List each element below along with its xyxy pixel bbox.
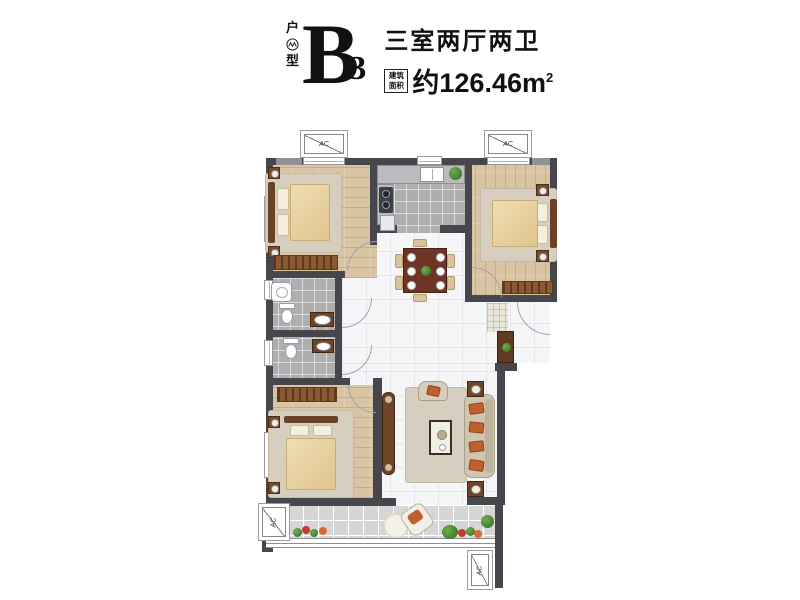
lamp-icon xyxy=(271,170,279,178)
bedroom3-nightstand xyxy=(268,482,280,494)
kitchen-fridge xyxy=(380,215,395,231)
dining-table xyxy=(403,248,447,293)
flower-icon xyxy=(302,526,310,534)
bed-pillow xyxy=(277,214,289,236)
cushion-icon xyxy=(407,509,424,526)
area-unit: m xyxy=(522,68,546,98)
dining-chair xyxy=(413,294,427,302)
flower-icon xyxy=(474,530,482,538)
dining-chair xyxy=(413,239,427,247)
dining-chair xyxy=(447,254,455,268)
bed-duvet xyxy=(290,184,330,241)
wall-bathroom-divider xyxy=(266,330,342,337)
bed-pillow xyxy=(537,203,548,222)
unit-type-label: 户 型 xyxy=(286,21,299,69)
window-kitchen xyxy=(417,156,442,165)
area-prefix: 约 xyxy=(412,68,439,98)
cushion-icon xyxy=(468,459,484,472)
bed-headboard xyxy=(284,416,338,423)
lamp-icon xyxy=(271,419,279,427)
ac-label: AC xyxy=(304,134,344,154)
plate-icon xyxy=(436,281,445,290)
kitchen-sink xyxy=(420,167,444,182)
ac-unit-bottom-right: AC xyxy=(467,550,493,590)
bedroom2-nightstand xyxy=(536,184,549,196)
header: 户 型 B 3 三室两厅两卫 建筑 面积 约126.46m2 xyxy=(286,12,553,100)
type-char-top: 户 xyxy=(286,21,299,35)
washing-machine-icon xyxy=(271,282,292,302)
entry-doormat xyxy=(487,303,508,332)
bed-headboard xyxy=(550,199,557,248)
wall-kitchen-stub-right xyxy=(440,225,472,233)
ac-label: AC xyxy=(488,134,528,154)
cushion-icon xyxy=(468,402,484,415)
bathroom2-toilet-icon xyxy=(283,338,299,360)
wall-top-light-right xyxy=(532,158,550,165)
coffee-table xyxy=(429,420,452,455)
area-badge: 建筑 面积 xyxy=(384,69,408,93)
bed-pillow xyxy=(290,425,309,436)
bedroom3-wardrobe xyxy=(277,387,337,402)
bedroom2-nightstand xyxy=(536,250,549,262)
window-bathroom2 xyxy=(264,340,273,366)
kitchen-plant-icon xyxy=(449,167,462,180)
area-row: 建筑 面积 约126.46m2 xyxy=(384,61,553,100)
shoe-cabinet xyxy=(497,331,514,363)
bed-pillow xyxy=(277,188,289,210)
dining-chair xyxy=(447,276,455,290)
wall-top-light-left xyxy=(276,158,302,165)
wall-bedroom1-bottom xyxy=(266,271,345,278)
side-table xyxy=(467,481,484,497)
centerpiece-plant-icon xyxy=(421,266,431,276)
bedroom3-bed xyxy=(282,416,340,494)
lamp-icon xyxy=(271,485,279,493)
plate-icon xyxy=(436,267,445,276)
wall-bedroom3-top xyxy=(266,378,350,385)
balcony-flowers-left xyxy=(293,525,331,538)
dining-chair xyxy=(395,276,403,290)
lamp-icon xyxy=(471,385,481,395)
flower-icon xyxy=(458,529,466,537)
bedroom3-nightstand xyxy=(268,416,280,428)
plate-icon xyxy=(407,281,416,290)
cushion-icon xyxy=(468,440,484,453)
ac-label: AC xyxy=(471,554,489,586)
area-text: 约126.46m2 xyxy=(412,61,553,100)
bed-pillow xyxy=(537,225,548,244)
type-char-bottom: 型 xyxy=(286,54,299,68)
bathroom2-sink-icon xyxy=(312,339,334,353)
floorplan-page: { "header": { "type_label_top": "户", "ty… xyxy=(0,0,800,600)
plate-icon xyxy=(407,253,416,262)
lamp-icon xyxy=(539,187,547,195)
kitchen-stove xyxy=(379,187,393,213)
bathroom1-sink-icon xyxy=(310,312,334,327)
lamp-icon xyxy=(471,485,481,495)
bed-pillow xyxy=(313,425,332,436)
bedroom1-bed xyxy=(268,180,332,245)
burner-icon xyxy=(382,201,390,209)
ac-unit-balcony-left: AC xyxy=(258,503,290,541)
bed-duvet xyxy=(286,438,336,490)
balcony-bush-icon xyxy=(481,515,494,528)
area-superscript: 2 xyxy=(546,70,553,85)
flower-icon xyxy=(319,527,327,535)
area-badge-line2: 面积 xyxy=(389,81,404,90)
rooms-summary: 三室两厅两卫 xyxy=(384,21,553,56)
wall-balcony-right xyxy=(495,505,503,588)
sofa xyxy=(464,394,495,478)
bedroom2-bed xyxy=(490,197,557,250)
wall-entry-step xyxy=(495,363,517,371)
unit-name: B 3 xyxy=(299,12,366,90)
side-table xyxy=(467,381,484,397)
armchair xyxy=(418,381,448,401)
ornament-icon xyxy=(286,38,299,51)
balcony-flowers-right xyxy=(458,527,482,539)
plant-icon xyxy=(502,343,511,352)
bathroom1-toilet-icon xyxy=(279,303,295,325)
dining-chair xyxy=(395,254,403,268)
bed-duvet xyxy=(492,200,538,247)
ac-unit-top-right: AC xyxy=(484,130,532,158)
tv-cabinet xyxy=(382,392,395,475)
area-value: 126.46 xyxy=(439,68,522,98)
bedroom2-wardrobe xyxy=(502,281,554,294)
ac-unit-top-left: AC xyxy=(300,130,348,158)
burner-icon xyxy=(382,190,390,198)
unit-description: 三室两厅两卫 建筑 面积 约126.46m2 xyxy=(384,21,553,100)
unit-number: 3 xyxy=(349,50,366,88)
plate-icon xyxy=(436,253,445,262)
floor-plan: AC AC AC AC xyxy=(248,126,564,596)
bedroom1-wardrobe xyxy=(273,255,338,270)
balcony-window-rail xyxy=(266,538,495,548)
cushion-icon xyxy=(468,421,484,434)
wall-right-middle xyxy=(497,371,505,505)
lamp-icon xyxy=(539,253,547,261)
cushion-icon xyxy=(426,385,441,397)
bedroom1-nightstand xyxy=(268,167,280,179)
balcony-plant-icon xyxy=(442,525,458,539)
bed-headboard xyxy=(268,182,275,243)
area-badge-line1: 建筑 xyxy=(389,71,404,80)
ac-label: AC xyxy=(262,507,286,537)
plate-icon xyxy=(407,267,416,276)
